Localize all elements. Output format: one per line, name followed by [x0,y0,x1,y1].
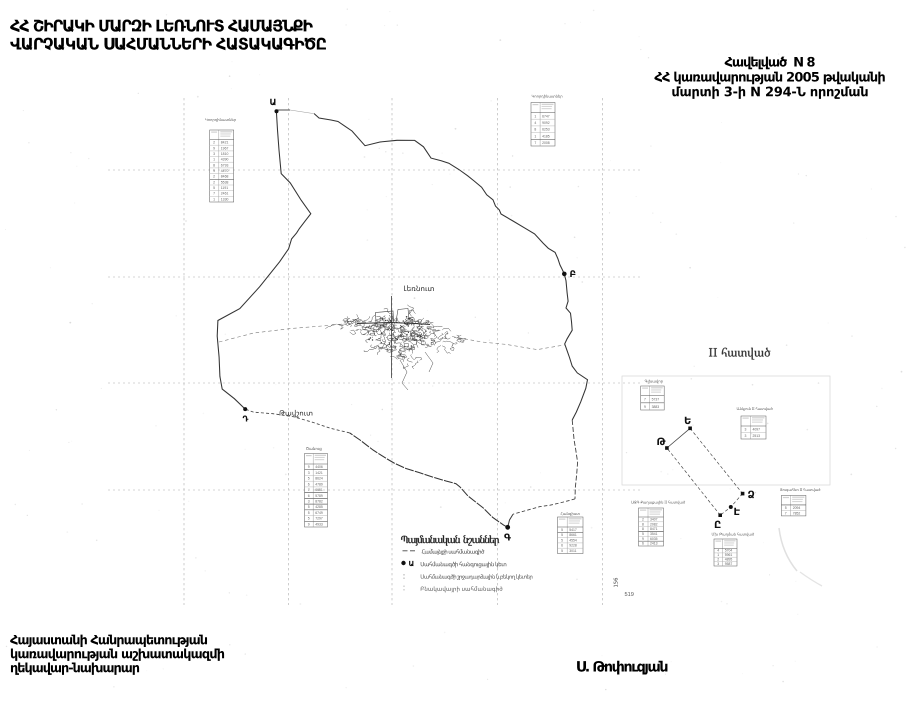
svg-text:2: 2 [213,180,215,184]
svg-text:2513: 2513 [753,434,761,438]
svg-text:1330: 1330 [221,197,229,201]
svg-text:6749: 6749 [315,511,323,515]
svg-text:6035: 6035 [650,537,658,541]
svg-text:5: 5 [642,532,644,536]
svg-text:9: 9 [642,537,644,541]
svg-text:2461: 2461 [221,192,229,196]
svg-text:2008: 2008 [542,141,550,145]
svg-text:8: 8 [213,163,215,167]
svg-text:4285: 4285 [315,505,323,509]
svg-text:5: 5 [213,186,215,190]
svg-text:3541: 3541 [650,532,658,536]
svg-text:4895: 4895 [725,557,733,561]
svg-text:9587: 9587 [725,562,733,566]
svg-text:3: 3 [308,471,310,475]
svg-text:3: 3 [308,500,310,504]
svg-text:5: 5 [785,506,787,510]
svg-text:5737: 5737 [652,398,660,402]
svg-text:4933: 4933 [315,522,323,526]
svg-text:8: 8 [642,527,644,531]
svg-text:5: 5 [308,517,310,521]
svg-text:4470: 4470 [221,169,229,173]
svg-text:9: 9 [213,146,215,150]
svg-text:5704: 5704 [725,549,733,553]
svg-text:519: 519 [625,592,634,598]
svg-text:7: 7 [644,398,646,402]
svg-text:5961: 5961 [725,553,733,557]
svg-text:6747: 6747 [542,114,550,118]
svg-text:8468: 8468 [221,175,229,179]
svg-text:3: 3 [745,434,747,438]
svg-text:5: 5 [308,505,310,509]
svg-text:3407: 3407 [650,518,658,522]
svg-text:9092: 9092 [542,121,550,125]
svg-text:8: 8 [642,522,644,526]
svg-text:4185: 4185 [542,134,550,138]
svg-text:4390: 4390 [221,158,229,162]
svg-text:6651: 6651 [315,488,323,492]
svg-text:7297: 7297 [315,517,323,521]
svg-text:2082: 2082 [650,522,658,526]
svg-text:1: 1 [534,114,536,118]
svg-text:7852: 7852 [793,511,801,515]
svg-text:4: 4 [717,549,719,553]
svg-text:6: 6 [642,542,644,546]
svg-text:3: 3 [717,562,719,566]
svg-text:2: 2 [642,518,644,522]
svg-text:2: 2 [717,557,719,561]
svg-text:5: 5 [561,538,563,542]
svg-text:1967: 1967 [221,146,229,150]
svg-text:3: 3 [745,428,747,432]
svg-text:5: 5 [561,528,563,532]
svg-text:8624: 8624 [315,477,323,481]
svg-text:5: 5 [308,477,310,481]
svg-text:2: 2 [213,141,215,145]
svg-text:6: 6 [308,494,310,498]
svg-text:3011: 3011 [569,549,576,553]
svg-text:9: 9 [644,405,646,409]
svg-text:8421: 8421 [221,141,229,145]
svg-text:1: 1 [213,158,215,162]
svg-text:8782: 8782 [315,500,323,504]
svg-text:4: 4 [534,121,536,125]
svg-text:7: 7 [308,488,310,492]
svg-text:3: 3 [213,152,215,156]
svg-text:3883: 3883 [652,405,660,409]
svg-text:6253: 6253 [542,128,550,132]
svg-text:9: 9 [308,465,310,469]
svg-text:5: 5 [561,549,563,553]
svg-text:7: 7 [534,141,536,145]
svg-text:9228: 9228 [569,544,577,548]
svg-text:4406: 4406 [315,465,323,469]
svg-text:1191: 1191 [221,186,228,190]
svg-text:1810: 1810 [221,152,229,156]
svg-text:2: 2 [213,175,215,179]
svg-text:1: 1 [717,553,719,557]
svg-text:6793: 6793 [221,163,229,167]
svg-text:1421: 1421 [315,471,323,475]
svg-text:8: 8 [534,128,536,132]
svg-text:5: 5 [561,533,563,537]
svg-text:5417: 5417 [569,528,577,532]
svg-text:2413: 2413 [650,542,658,546]
svg-text:8661: 8661 [569,533,577,537]
svg-text:6: 6 [308,482,310,486]
svg-text:9: 9 [213,169,215,173]
svg-text:4097: 4097 [753,428,761,432]
svg-text:1: 1 [534,134,536,138]
svg-text:4554: 4554 [569,538,577,542]
svg-text:5789: 5789 [315,494,323,498]
svg-text:1: 1 [213,197,215,201]
svg-text:8471: 8471 [650,527,658,531]
svg-text:2094: 2094 [793,506,801,510]
svg-text:4789: 4789 [315,482,323,486]
svg-text:9: 9 [308,522,310,526]
svg-text:7: 7 [213,192,215,196]
svg-text:5538: 5538 [221,180,229,184]
svg-text:7: 7 [785,511,787,515]
svg-text:5: 5 [308,511,310,515]
svg-text:6: 6 [561,544,563,548]
